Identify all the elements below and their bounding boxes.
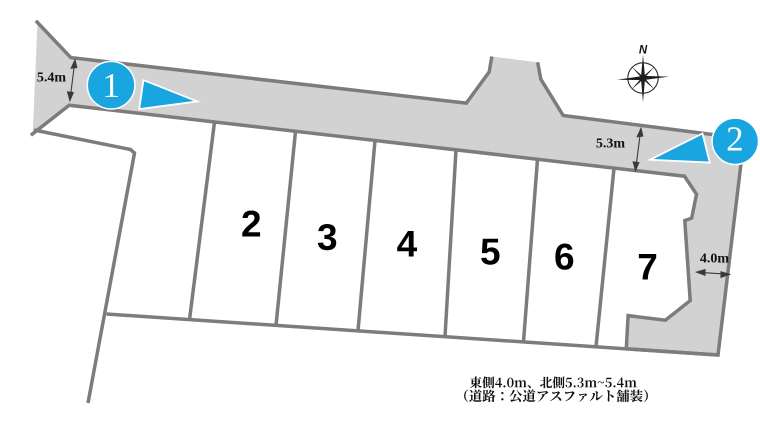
svg-text:5.4m: 5.4m <box>37 71 67 86</box>
svg-text:N: N <box>639 45 648 57</box>
svg-text:5.3m: 5.3m <box>596 137 626 152</box>
svg-text:5: 5 <box>480 232 501 273</box>
svg-text:6: 6 <box>554 237 575 278</box>
svg-text:4.0m: 4.0m <box>700 252 730 267</box>
svg-text:7: 7 <box>637 246 658 287</box>
svg-text:4: 4 <box>397 224 418 265</box>
svg-text:3: 3 <box>317 217 338 258</box>
svg-text:1: 1 <box>102 66 120 105</box>
svg-text:2: 2 <box>241 204 262 245</box>
svg-text:2: 2 <box>726 120 744 159</box>
